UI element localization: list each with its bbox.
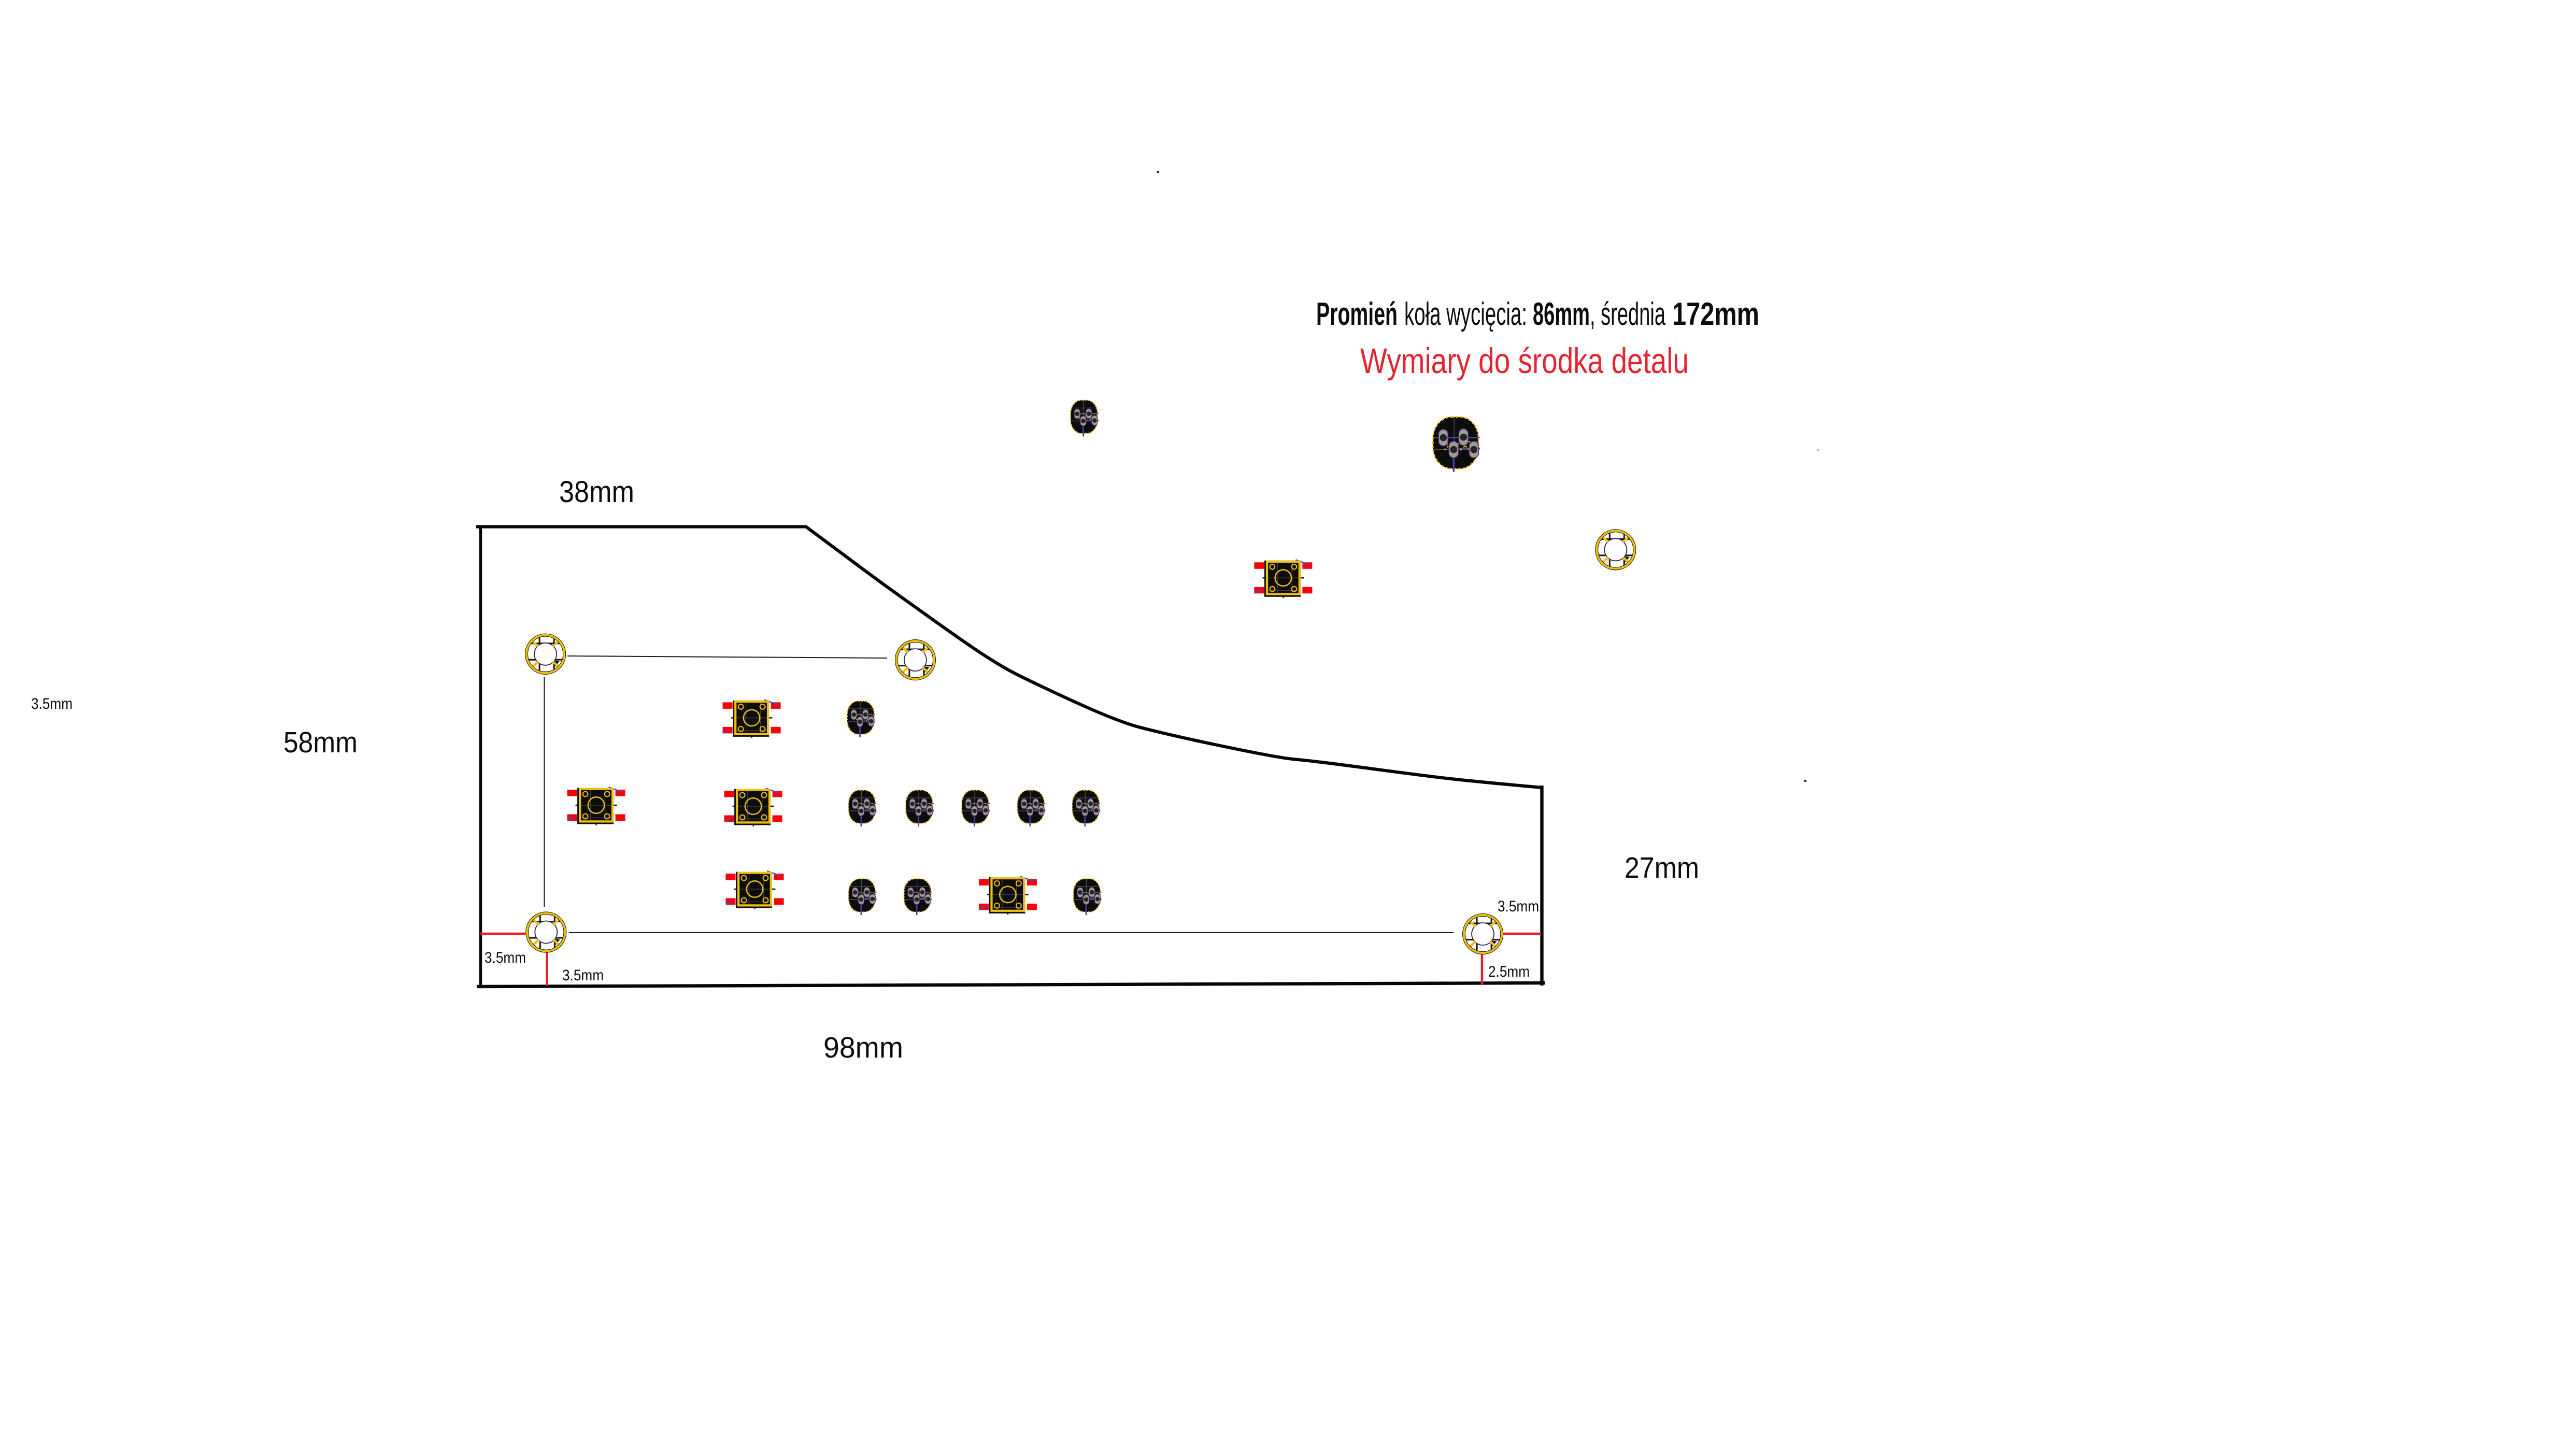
svg-text:, średnia: , średnia [1590,296,1665,332]
svg-text:Promień: Promień [1316,296,1398,332]
svg-text:3.5mm: 3.5mm [31,695,73,712]
svg-text:koła wycięcia:: koła wycięcia: [1404,296,1527,332]
svg-text:3.5mm: 3.5mm [485,949,526,966]
svg-text:27mm: 27mm [1625,851,1699,884]
svg-text:98mm: 98mm [823,1031,903,1064]
svg-text:86mm: 86mm [1533,296,1590,332]
svg-text:3.5mm: 3.5mm [562,967,604,984]
svg-text:3.5mm: 3.5mm [1498,898,1539,915]
svg-text:38mm: 38mm [559,475,634,509]
svg-text:172mm: 172mm [1672,296,1759,332]
svg-text:2.5mm: 2.5mm [1488,963,1530,980]
svg-text:Wymiary do środka detalu: Wymiary do środka detalu [1360,341,1689,381]
svg-text:58mm: 58mm [283,726,358,759]
